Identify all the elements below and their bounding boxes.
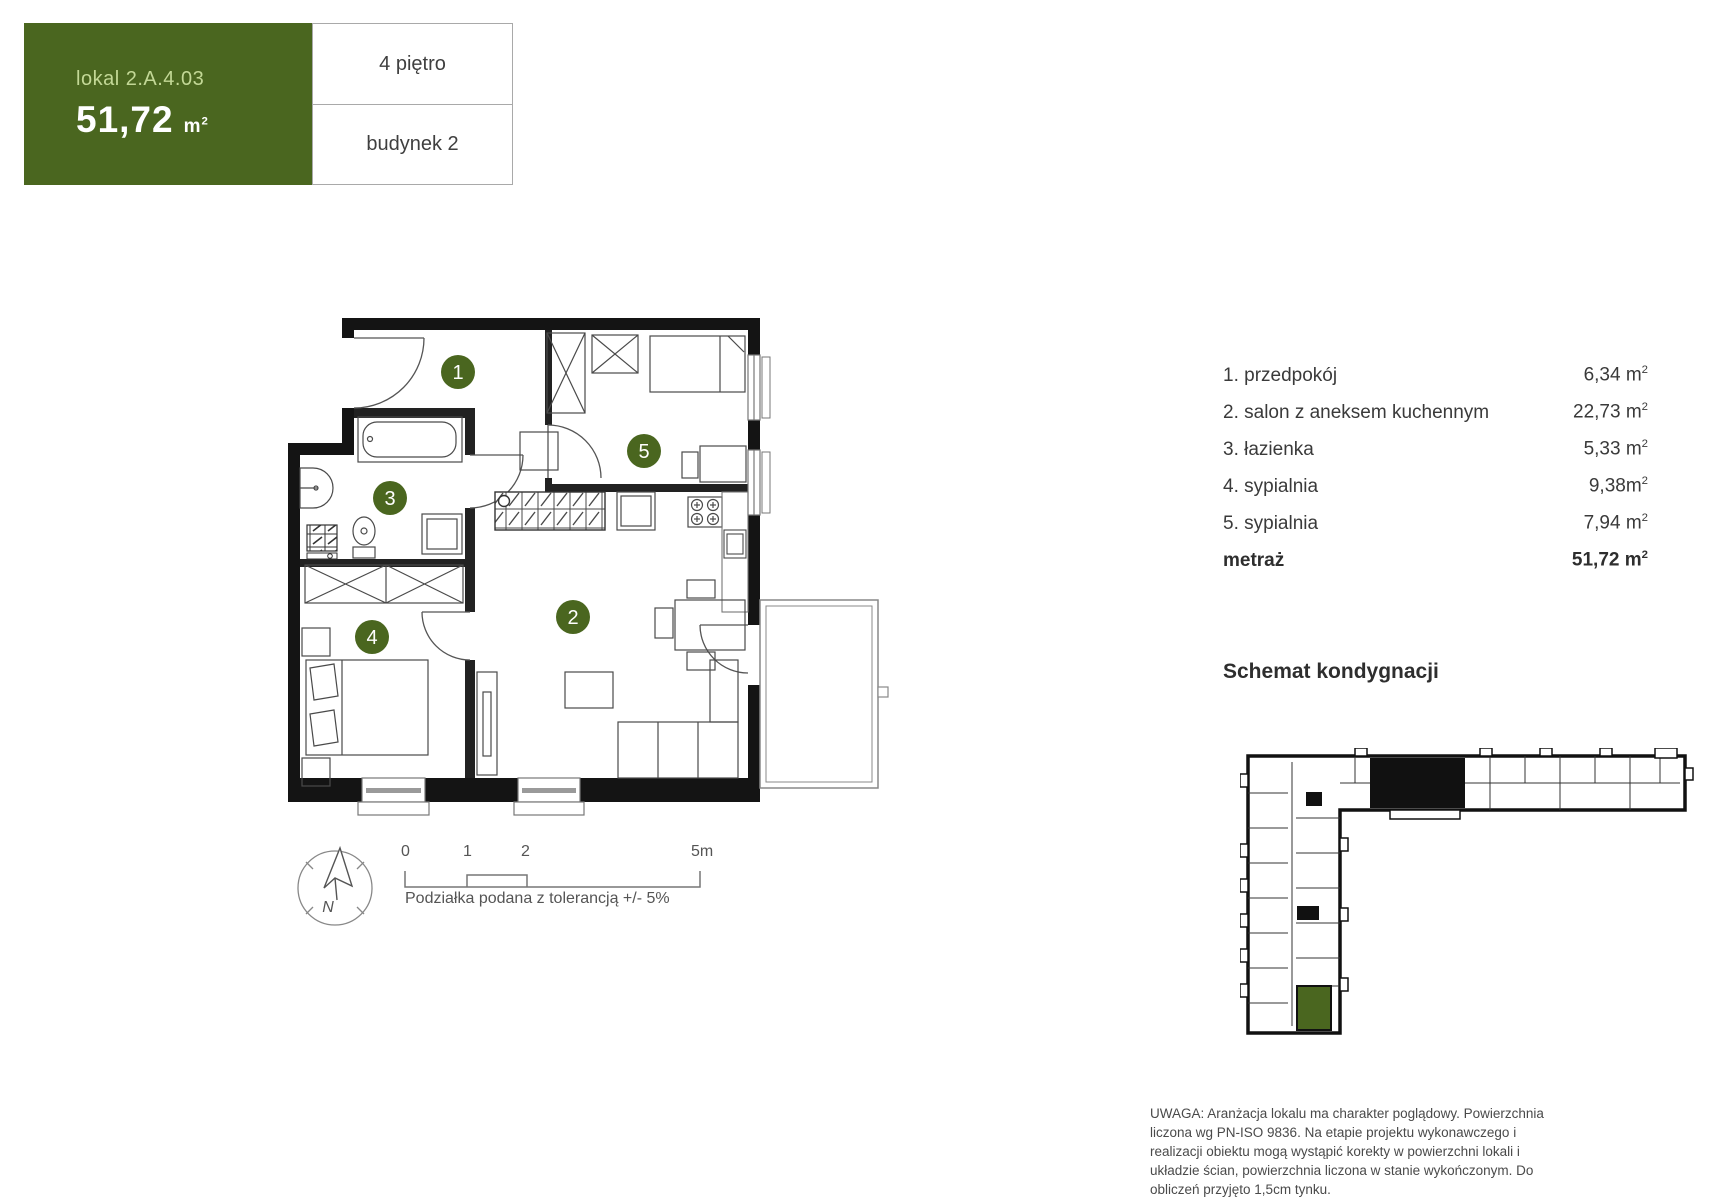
table-row: 4. sypialnia 9,38m2 bbox=[1223, 468, 1648, 505]
toilet bbox=[353, 517, 375, 558]
schematic-current-unit bbox=[1297, 986, 1331, 1030]
room-number-1: 1 bbox=[452, 362, 463, 384]
kitchen-sink-counter bbox=[722, 492, 748, 612]
unit-number-label: lokal 2.A.4.03 bbox=[76, 68, 312, 91]
floor-plan: 1 2 3 4 5 bbox=[250, 300, 910, 830]
window-right-2 bbox=[748, 450, 770, 515]
table-row: 3. łazienka 5,33 m2 bbox=[1223, 431, 1648, 468]
disclaimer-text: UWAGA: Aranżacja lokalu ma charakter pog… bbox=[1150, 1104, 1570, 1199]
bedroom5-desk bbox=[682, 446, 746, 482]
stove-hob bbox=[688, 497, 722, 527]
hall-cabinet bbox=[520, 432, 558, 470]
compass: N bbox=[282, 838, 392, 943]
schematic-shaft-block bbox=[1297, 906, 1319, 920]
floor-schematic bbox=[1240, 748, 1700, 1043]
room-area-table: 1. przedpokój 6,34 m2 2. salon z aneksem… bbox=[1223, 357, 1648, 579]
room-label: 1. przedpokój bbox=[1223, 365, 1337, 387]
building-label: budynek 2 bbox=[313, 104, 512, 184]
bedroom4-bed bbox=[306, 660, 428, 755]
room-area: 5,33 m2 bbox=[1584, 438, 1648, 460]
scale-tick-2: 2 bbox=[521, 843, 530, 861]
room-area: 22,73 m2 bbox=[1573, 401, 1648, 423]
scale-tick-5m: 5m bbox=[691, 843, 713, 861]
room-area: 7,94 m2 bbox=[1584, 512, 1648, 534]
window-bottom-2 bbox=[514, 778, 584, 815]
nightstand-1 bbox=[302, 628, 330, 656]
sofa bbox=[618, 660, 738, 778]
bathtub bbox=[358, 417, 462, 462]
schematic-stair-block bbox=[1306, 792, 1322, 806]
coffee-table bbox=[565, 672, 613, 708]
scale-tick-0: 0 bbox=[401, 843, 410, 861]
total-label: metraż bbox=[1223, 550, 1284, 572]
table-row: 5. sypialnia 7,94 m2 bbox=[1223, 505, 1648, 542]
table-row-total: metraż 51,72 m2 bbox=[1223, 542, 1648, 579]
schematic-core-block bbox=[1370, 758, 1465, 808]
scale-tolerance-note: Podziałka podana z tolerancją +/- 5% bbox=[405, 890, 670, 908]
window-bottom-1 bbox=[358, 778, 429, 815]
room-label: 2. salon z aneksem kuchennym bbox=[1223, 402, 1489, 424]
schematic-title: Schemat kondygnacji bbox=[1223, 660, 1439, 684]
room-number-3: 3 bbox=[384, 488, 395, 510]
schematic-core-balcony bbox=[1390, 810, 1460, 819]
kitchen-counter bbox=[495, 492, 605, 530]
north-arrow-icon bbox=[324, 848, 352, 888]
floorplan-page: { "header": { "unit_label": "lokal 2.A.4… bbox=[0, 0, 1719, 1200]
total-area: 51,72 m2 bbox=[1572, 549, 1648, 571]
room-label: 4. sypialnia bbox=[1223, 476, 1318, 498]
room-number-4: 4 bbox=[366, 627, 377, 649]
bathroom-cabinet bbox=[422, 514, 462, 554]
fridge bbox=[617, 492, 655, 530]
floor-label: 4 piętro bbox=[313, 24, 512, 104]
balcony-door bbox=[700, 625, 748, 673]
bedroom4-wardrobe bbox=[305, 565, 463, 603]
bedroom4-door bbox=[422, 612, 470, 660]
room-label: 3. łazienka bbox=[1223, 439, 1314, 461]
bedroom5-bed bbox=[650, 336, 745, 392]
tv-unit bbox=[477, 672, 497, 775]
room-area: 9,38m2 bbox=[1589, 475, 1648, 497]
room-number-5: 5 bbox=[638, 441, 649, 463]
table-row: 2. salon z aneksem kuchennym 22,73 m2 bbox=[1223, 394, 1648, 431]
unit-meta-boxes: 4 piętro budynek 2 bbox=[312, 23, 513, 185]
unit-area-value: 51,72 bbox=[76, 99, 174, 140]
window-right-1 bbox=[748, 355, 770, 420]
unit-header-card: lokal 2.A.4.03 51,72m2 bbox=[24, 23, 312, 185]
hall-wardrobe-tall bbox=[547, 333, 585, 413]
room-area: 6,34 m2 bbox=[1584, 364, 1648, 386]
room-label: 5. sypialnia bbox=[1223, 513, 1318, 535]
compass-north-label: N bbox=[322, 899, 334, 916]
unit-area-label: 51,72m2 bbox=[76, 99, 312, 141]
scale-tick-1: 1 bbox=[463, 843, 472, 861]
washer-tiles bbox=[307, 525, 337, 559]
interior-walls bbox=[300, 330, 748, 778]
hall-wardrobe-square bbox=[592, 335, 638, 373]
washbasin bbox=[300, 468, 333, 508]
balcony bbox=[760, 600, 888, 788]
entrance-door bbox=[354, 338, 424, 408]
room-number-2: 2 bbox=[567, 607, 578, 629]
table-row: 1. przedpokój 6,34 m2 bbox=[1223, 357, 1648, 394]
